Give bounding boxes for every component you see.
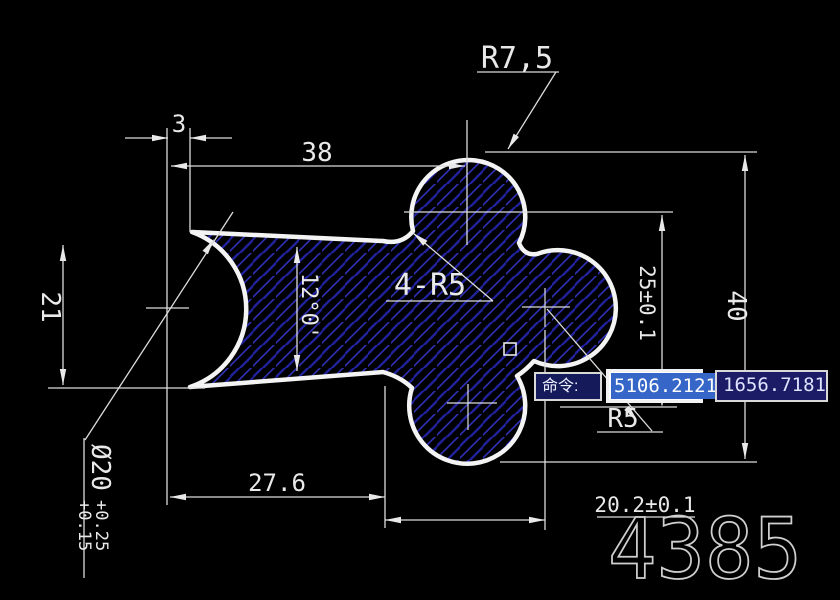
dim-label-21: 21 [35, 291, 65, 322]
dim-label-angle: 12°0' [296, 273, 321, 339]
dim-label-3: 3 [172, 110, 186, 138]
dim-label-4r5: 4-R5 [394, 268, 466, 303]
part-number-text: 4385 [608, 500, 802, 598]
command-prompt-label: 命令: [534, 372, 602, 401]
dim-label-25: 25±0.1 [635, 265, 659, 341]
cad-viewport: R7,5 3 38 21 12°0' 4-R5 25±0.1 40 R5 27.… [0, 0, 840, 600]
dim-label-276: 27.6 [248, 469, 306, 497]
coordinate-y-input[interactable]: 1656.7181 [715, 370, 828, 402]
dim-label-r75: R7,5 [481, 41, 553, 76]
coordinate-x-value[interactable]: 5106.2121 [611, 373, 720, 399]
cad-drawing-canvas: R7,5 3 38 21 12°0' 4-R5 25±0.1 40 R5 27.… [0, 0, 840, 600]
dia-main-text: Ø20 [85, 444, 115, 491]
dia-tolerance-lower: +0.15 [74, 500, 94, 551]
dim-label-40: 40 [721, 290, 751, 321]
coordinate-x-input[interactable]: 5106.2121 [606, 369, 703, 403]
dim-label-38: 38 [301, 138, 332, 168]
dim-label-dia20: Ø20 +0.25 +0.15 [74, 444, 115, 551]
dim-label-r5: R5 [607, 404, 638, 434]
part-outline [190, 160, 616, 464]
